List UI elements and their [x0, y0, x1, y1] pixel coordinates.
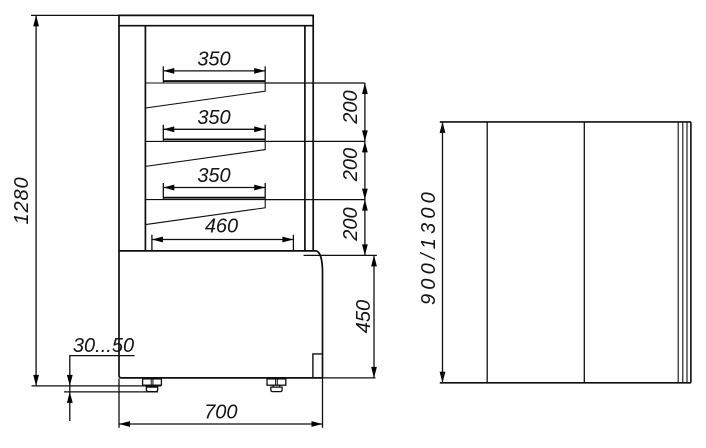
svg-text:30...50: 30...50 — [73, 335, 134, 357]
svg-text:350: 350 — [197, 49, 230, 71]
svg-text:350: 350 — [197, 165, 230, 187]
svg-text:1280: 1280 — [11, 176, 33, 224]
svg-text:200: 200 — [340, 207, 362, 241]
svg-text:900/1300: 900/1300 — [418, 188, 440, 305]
svg-text:700: 700 — [204, 402, 237, 424]
svg-text:350: 350 — [197, 107, 230, 129]
svg-text:450: 450 — [353, 300, 375, 333]
svg-text:460: 460 — [205, 216, 238, 238]
svg-text:200: 200 — [340, 90, 362, 124]
svg-text:200: 200 — [340, 148, 362, 182]
